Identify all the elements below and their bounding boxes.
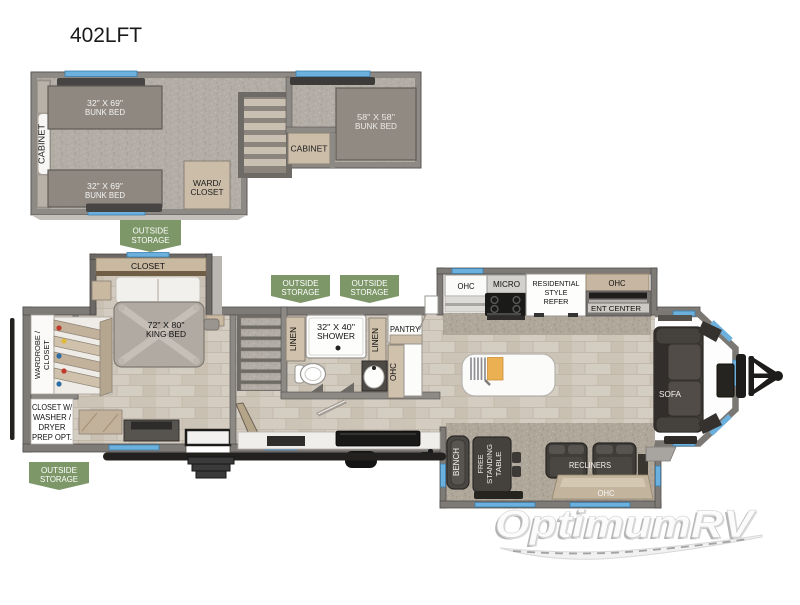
svg-text:OUTSIDE: OUTSIDE [133,227,169,236]
svg-text:STORAGE: STORAGE [132,236,170,245]
svg-text:OHC: OHC [598,489,615,498]
svg-text:WARDROBE /: WARDROBE / [33,330,42,379]
svg-text:OUTSIDE: OUTSIDE [283,279,319,288]
svg-text:LINEN: LINEN [289,327,298,351]
svg-text:PREP OPT.: PREP OPT. [32,433,72,442]
svg-text:BUNK BED: BUNK BED [85,191,125,200]
svg-text:WARD/: WARD/ [193,179,222,188]
svg-text:SOFA: SOFA [659,390,682,399]
svg-text:32" X 40": 32" X 40" [317,323,355,332]
svg-text:STORAGE: STORAGE [351,288,389,297]
svg-text:402LFT: 402LFT [70,23,142,47]
svg-text:KING BED: KING BED [146,330,186,339]
svg-text:MICRO: MICRO [493,280,520,289]
svg-text:OUTSIDE: OUTSIDE [352,279,388,288]
svg-text:LINEN: LINEN [371,328,380,352]
svg-text:CABINET: CABINET [37,124,47,164]
svg-text:STYLE: STYLE [545,288,568,297]
svg-text:STORAGE: STORAGE [282,288,320,297]
svg-text:RESIDENTIAL: RESIDENTIAL [533,279,580,288]
svg-text:OUTSIDE: OUTSIDE [41,466,77,475]
svg-text:CABINET: CABINET [291,144,328,154]
svg-text:SHOWER: SHOWER [317,332,355,341]
svg-text:STORAGE: STORAGE [40,475,78,484]
svg-text:DRYER: DRYER [39,423,66,432]
svg-text:BENCH: BENCH [452,448,461,476]
svg-text:72" X 80": 72" X 80" [148,321,185,330]
svg-text:CLOSET: CLOSET [42,340,51,370]
svg-text:BUNK BED: BUNK BED [85,108,125,117]
svg-text:BUNK BED: BUNK BED [355,122,397,131]
svg-text:CLOSET W/: CLOSET W/ [32,403,73,412]
svg-text:CLOSET: CLOSET [191,188,224,197]
svg-text:OHC: OHC [458,282,475,291]
svg-text:REFER: REFER [544,297,569,306]
svg-text:TABLE: TABLE [494,452,503,477]
svg-text:CLOSET: CLOSET [131,261,165,271]
svg-text:32" X 69": 32" X 69" [87,99,123,108]
svg-text:58" X 58": 58" X 58" [357,113,395,122]
svg-text:WASHER /: WASHER / [33,413,72,422]
svg-text:STANDING: STANDING [485,444,494,484]
svg-text:FREE: FREE [476,455,485,474]
svg-text:RECLINERS: RECLINERS [569,461,611,470]
svg-text:ENT CENTER: ENT CENTER [591,304,642,313]
svg-text:32" X 69": 32" X 69" [87,182,123,191]
svg-text:PANTRY: PANTRY [390,325,421,334]
svg-text:OHC: OHC [609,279,626,288]
svg-text:OptimumRV: OptimumRV [495,503,756,546]
svg-text:OHC: OHC [389,363,398,381]
